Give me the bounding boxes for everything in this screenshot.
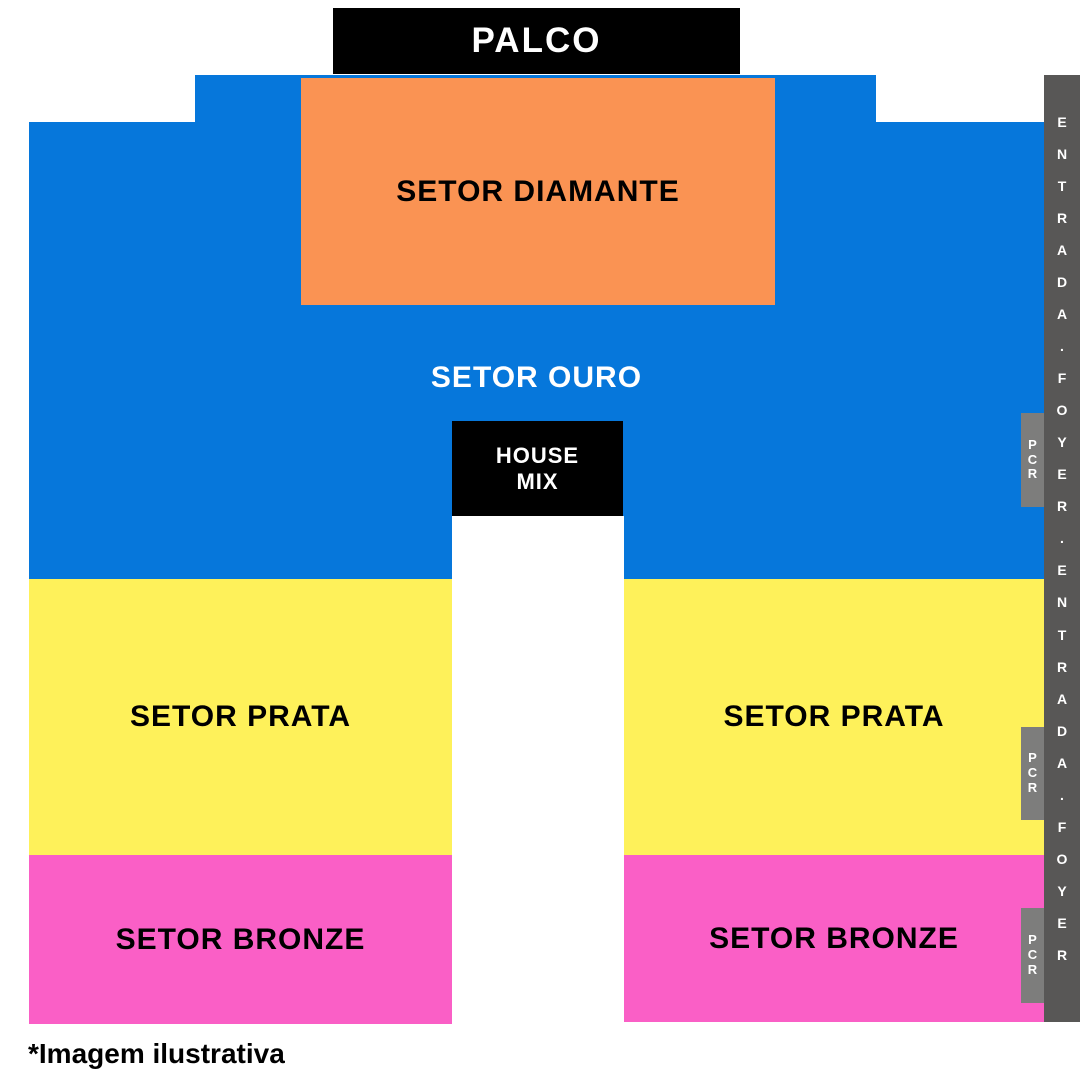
sector-bronze-left: SETOR BRONZE xyxy=(29,855,452,1024)
sector-prata-right: SETOR PRATA xyxy=(624,579,1044,855)
pcr-box-ouro: PCR xyxy=(1021,413,1044,507)
pcr-box-prata: PCR xyxy=(1021,727,1044,820)
center-aisle xyxy=(452,516,624,579)
sector-bronze-right: SETOR BRONZE xyxy=(624,855,1044,1022)
sector-diamante: SETOR DIAMANTE xyxy=(301,78,775,305)
house-mix-line1: HOUSE xyxy=(496,443,579,468)
illustrative-image-note: *Imagem ilustrativa xyxy=(28,1038,285,1070)
sector-ouro-label: SETOR OURO xyxy=(29,358,1044,398)
house-mix-booth: HOUSE MIX xyxy=(452,421,623,516)
sector-prata-left: SETOR PRATA xyxy=(29,579,452,855)
venue-seating-map: PALCO SETOR DIAMANTE SETOR OURO HOUSE MI… xyxy=(0,0,1080,1080)
house-mix-line2: MIX xyxy=(516,469,558,494)
entrance-foyer-bar: ENTRADA.FOYER.ENTRADA.FOYER xyxy=(1044,75,1080,1022)
pcr-box-bronze: PCR xyxy=(1021,908,1044,1003)
stage-banner: PALCO xyxy=(333,8,740,74)
